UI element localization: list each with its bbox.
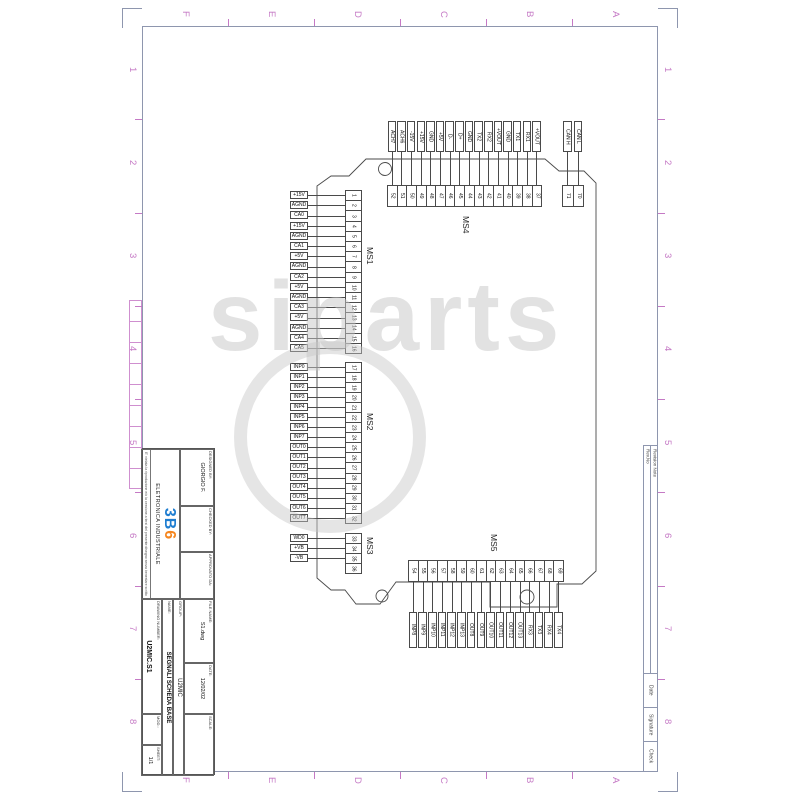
pin-label-WD0: WD0 — [290, 534, 308, 542]
pin-cell: 60 — [467, 561, 477, 581]
pin-number: 8 — [351, 266, 357, 269]
ms4-pin-strip: 52515049484746454443424140393837 — [387, 185, 542, 207]
pin-cell: 5 — [346, 232, 361, 242]
checked-by-label: CHECKED BY: — [208, 507, 214, 551]
pin-number: 52 — [389, 193, 395, 199]
date-label-titleblock: DATE: — [208, 664, 214, 713]
pin-wire — [308, 226, 345, 227]
pin-cell: 46 — [446, 186, 456, 206]
pin-label-TX3: TX3 — [535, 612, 544, 648]
pin-number: 16 — [351, 346, 357, 352]
pin-wire — [490, 582, 491, 612]
pin-cell: 35 — [346, 554, 361, 564]
scale-label: SCALE: — [208, 715, 214, 775]
pin-cell: 43 — [475, 186, 485, 206]
pin-number: 28 — [351, 475, 357, 481]
pin-wire — [488, 152, 489, 185]
pin-number: 39 — [515, 193, 521, 199]
pin-label-+5V: +5V — [436, 121, 445, 152]
pin-number: 38 — [524, 193, 530, 199]
pin-wire — [442, 582, 443, 612]
pin-wire — [452, 582, 453, 612]
ms1-pin-strip: 12345678910111213141516 — [345, 190, 362, 354]
pin-cell: 11 — [346, 293, 361, 303]
pin-label-OUT12: OUT12 — [506, 612, 515, 648]
pin-label-INP2: INP2 — [290, 383, 308, 391]
pin-number: 71 — [565, 193, 571, 199]
pin-label-OUT0: OUT0 — [290, 443, 308, 451]
pin-wire — [461, 582, 462, 612]
pin-label-RX2: RX2 — [484, 121, 493, 152]
pin-cell: 6 — [346, 242, 361, 252]
pin-number: 57 — [439, 568, 445, 574]
pin-number: 43 — [476, 193, 482, 199]
pin-label--15V: -15V — [407, 121, 416, 152]
pin-wire — [308, 447, 345, 448]
pin-wire — [479, 152, 480, 185]
pin-number: 37 — [534, 193, 540, 199]
pin-wire — [308, 558, 345, 559]
pin-cell: 14 — [346, 324, 361, 334]
pin-label-OUT1: OUT1 — [290, 453, 308, 461]
mod-label: MOD.: — [156, 715, 162, 744]
ms2-caption: MS2 — [365, 413, 375, 430]
pin-number: 62 — [488, 568, 494, 574]
ms4-caption: MS4 — [461, 216, 471, 233]
pin-cell: 31 — [346, 504, 361, 514]
drawing-number-cell: DRAWING NUMBER: U2MIC.S1 — [141, 599, 162, 714]
drawing-sheet: Rev.No Revision Note Date Signature Chec… — [0, 0, 800, 800]
pin-cell: 47 — [436, 186, 446, 206]
sheet-label: SHEET: — [156, 746, 162, 775]
pin-label-INP1: INP1 — [290, 373, 308, 381]
pin-label-CA3: CA3 — [290, 303, 308, 311]
pin-number: 56 — [430, 568, 436, 574]
pin-cell: 56 — [428, 561, 438, 581]
pin-cell: 39 — [513, 186, 523, 206]
pin-cell: 50 — [407, 186, 417, 206]
pin-label-ACH6: ACH6 — [397, 121, 406, 152]
pin-number: 23 — [351, 425, 357, 431]
pin-cell: 36 — [346, 564, 361, 574]
pin-number: 2 — [351, 204, 357, 207]
pin-cell: 12 — [346, 303, 361, 313]
pin-number: 10 — [351, 285, 357, 291]
pin-number: 25 — [351, 445, 357, 451]
pin-wire — [308, 508, 345, 509]
pin-label-RX1: RX1 — [523, 121, 532, 152]
pin-label-CA2: CA2 — [290, 273, 308, 281]
pin-label-CA0: CA0 — [290, 211, 308, 219]
pin-label-OUT6: OUT6 — [290, 504, 308, 512]
pin-wire — [401, 152, 402, 185]
pin-number: 5 — [351, 235, 357, 238]
pin-cell: 25 — [346, 443, 361, 453]
checked-by-cell: CHECKED BY: — [180, 506, 214, 552]
pin-label-RX4: RX4 — [544, 612, 553, 648]
pin-label-+15V: +15V — [417, 121, 426, 152]
pin-number: 58 — [449, 568, 455, 574]
pin-label--VB: -VB — [290, 554, 308, 562]
pin-wire — [308, 417, 345, 418]
pin-number: 35 — [351, 556, 357, 562]
pin-cell: 15 — [346, 334, 361, 344]
pin-number: 17 — [351, 365, 357, 371]
ms3-caption: MS3 — [365, 537, 375, 554]
pin-number: 69 — [556, 568, 562, 574]
pin-cell: 63 — [496, 561, 506, 581]
pin-wire — [392, 152, 393, 185]
pin-wire — [308, 318, 345, 319]
pin-cell: 13 — [346, 313, 361, 323]
pin-cell: 65 — [516, 561, 526, 581]
pin-number: 61 — [478, 568, 484, 574]
title-block: DESIGNED BY: GIORGIO F. CHECKED BY: APPR… — [142, 448, 215, 775]
pin-label-+5V: +5V — [290, 252, 308, 260]
pin-label-TX4: TX4 — [554, 612, 563, 648]
pin-cell: 17 — [346, 363, 361, 373]
pin-label-+VOUT: +VOUT — [494, 121, 503, 152]
ms1-caption: MS1 — [365, 247, 375, 264]
pin-number: 31 — [351, 505, 357, 511]
pin-label-INP7: INP7 — [290, 433, 308, 441]
pin-label-OUT8: OUT8 — [467, 612, 476, 648]
pin-label-CAN-L: CAN L — [574, 121, 583, 152]
pin-label-AGND: AGND — [290, 324, 308, 332]
pin-wire — [432, 582, 433, 612]
pin-number: 19 — [351, 385, 357, 391]
sheet-value: 1/1 — [148, 746, 154, 775]
pin-cell: 71 — [563, 186, 574, 206]
pin-cell: 28 — [346, 474, 361, 484]
pin-cell: 22 — [346, 413, 361, 423]
pin-number: 27 — [351, 465, 357, 471]
mod-cell: MOD.: — [141, 714, 162, 745]
pin-number: 33 — [351, 536, 357, 542]
company-logo-cell: 3B6 ELETRONICA INDUSTRIALE E' vietata la… — [141, 449, 180, 599]
can-pin-strip: 7170 — [562, 185, 584, 207]
approved-by-label: APPROVATO DA: — [208, 553, 214, 598]
pin-wire — [308, 457, 345, 458]
pin-cell: 20 — [346, 393, 361, 403]
pin-cell: 70 — [574, 186, 585, 206]
pin-label-INP3: INP3 — [290, 393, 308, 401]
pin-wire — [308, 407, 345, 408]
pin-label-INP8: INP8 — [409, 612, 418, 648]
company-logo: 3B6 — [161, 450, 177, 598]
pin-cell: 29 — [346, 484, 361, 494]
pin-wire — [308, 287, 345, 288]
fine-print: E' vietata la riproduzione e/o la cessio… — [142, 450, 151, 598]
pin-number: 46 — [447, 193, 453, 199]
pin-number: 3 — [351, 215, 357, 218]
logo-digit-3: 3 — [161, 508, 178, 518]
pin-wire — [421, 152, 422, 185]
pin-wire — [578, 152, 579, 185]
pin-number: 12 — [351, 305, 357, 311]
pin-label-OUT9: OUT9 — [477, 612, 486, 648]
pin-number: 59 — [459, 568, 465, 574]
name-value: SEGNALI SCHEDA BASE — [165, 600, 171, 775]
pin-cell: 51 — [398, 186, 408, 206]
pin-wire — [549, 582, 550, 612]
pin-wire — [308, 397, 345, 398]
pin-label-GND: GND — [503, 121, 512, 152]
pin-label-OUT2: OUT2 — [290, 463, 308, 471]
pin-label-AGND: AGND — [290, 232, 308, 240]
pin-wire — [308, 348, 345, 349]
pin-number: 18 — [351, 375, 357, 381]
pin-number: 49 — [418, 193, 424, 199]
pin-number: 55 — [420, 568, 426, 574]
drawing-number-label: DRAWING NUMBER: — [156, 600, 162, 713]
pin-number: 66 — [527, 568, 533, 574]
pin-number: 6 — [351, 245, 357, 248]
pin-wire — [459, 152, 460, 185]
pin-number: 63 — [498, 568, 504, 574]
pin-wire — [308, 236, 345, 237]
pin-label-INP11: INP11 — [438, 612, 447, 648]
pin-number: 11 — [351, 295, 357, 300]
pin-label-CA5: CA5 — [290, 344, 308, 352]
pin-wire — [481, 582, 482, 612]
pin-cell: 18 — [346, 373, 361, 383]
pin-wire — [413, 582, 414, 612]
pin-number: 29 — [351, 485, 357, 491]
pin-number: 54 — [410, 568, 416, 574]
pin-label-AGND: AGND — [290, 262, 308, 270]
logo-letter-b: B — [161, 518, 178, 531]
pin-wire — [471, 582, 472, 612]
group-cell: GROUP: U2MIC — [173, 599, 184, 776]
pin-wire — [308, 338, 345, 339]
ms3-pin-strip: 33343536 — [345, 533, 362, 574]
pin-number: 50 — [409, 193, 415, 199]
pin-cell: 41 — [494, 186, 504, 206]
pin-cell: 42 — [484, 186, 494, 206]
pin-label-OUT11: OUT11 — [496, 612, 505, 648]
pin-wire — [500, 582, 501, 612]
pin-cell: 52 — [388, 186, 398, 206]
designed-by-cell: DESIGNED BY: GIORGIO F. — [180, 449, 214, 506]
pin-wire — [308, 195, 345, 196]
pin-number: 34 — [351, 546, 357, 552]
pin-wire — [308, 256, 345, 257]
pin-number: 24 — [351, 435, 357, 441]
pin-number: 67 — [536, 568, 542, 574]
pin-cell: 66 — [525, 561, 535, 581]
pin-number: 48 — [428, 193, 434, 199]
group-value: U2MIC — [176, 600, 182, 775]
pin-cell: 64 — [506, 561, 516, 581]
pin-wire — [308, 205, 345, 206]
pin-cell: 16 — [346, 344, 361, 354]
date-value: 12/02/02 — [200, 664, 206, 713]
pin-number: 15 — [351, 336, 357, 342]
pin-wire — [527, 152, 528, 185]
pin-wire — [539, 582, 540, 612]
pin-cell: 44 — [465, 186, 475, 206]
pin-wire — [510, 582, 511, 612]
pin-cell: 61 — [477, 561, 487, 581]
board-outline — [0, 0, 800, 800]
pin-cell: 19 — [346, 383, 361, 393]
pin-number: 7 — [351, 255, 357, 258]
pin-wire — [308, 377, 345, 378]
pin-label-D-: D- — [445, 121, 454, 152]
pin-number: 70 — [576, 193, 582, 199]
pin-cell: 7 — [346, 252, 361, 262]
pin-label-AGND: AGND — [290, 293, 308, 301]
pin-wire — [308, 307, 345, 308]
pin-cell: 9 — [346, 273, 361, 283]
pin-number: 68 — [546, 568, 552, 574]
pin-cell: 23 — [346, 423, 361, 433]
pin-label-OUT7: OUT7 — [290, 514, 308, 522]
pin-wire — [308, 548, 345, 549]
date-cell-titleblock: DATE: 12/02/02 — [184, 663, 214, 714]
pin-cell: 37 — [533, 186, 543, 206]
approved-by-cell: APPROVATO DA: — [180, 552, 214, 599]
pin-label-INP9: INP9 — [418, 612, 427, 648]
pin-number: 30 — [351, 495, 357, 501]
pin-cell: 49 — [417, 186, 427, 206]
pin-cell: 10 — [346, 283, 361, 293]
pin-wire — [508, 152, 509, 185]
pin-number: 9 — [351, 276, 357, 279]
pin-number: 40 — [505, 193, 511, 199]
pin-cell: 62 — [487, 561, 497, 581]
pin-wire — [558, 582, 559, 612]
pin-label-OUT4: OUT4 — [290, 483, 308, 491]
pin-label-TX1: TX1 — [513, 121, 522, 152]
pin-number: 47 — [438, 193, 444, 199]
pin-cell: 38 — [523, 186, 533, 206]
pin-label-OUT10: OUT10 — [486, 612, 495, 648]
pin-label-AGND: AGND — [290, 201, 308, 209]
pin-number: 51 — [399, 193, 405, 199]
pin-number: 60 — [469, 568, 475, 574]
pin-label-GND: GND — [426, 121, 435, 152]
scale-cell: SCALE: — [184, 714, 214, 776]
pin-number: 20 — [351, 395, 357, 401]
pin-wire — [308, 277, 345, 278]
pin-number: 42 — [486, 193, 492, 199]
pin-cell: 40 — [504, 186, 514, 206]
pin-number: 36 — [351, 566, 357, 572]
file-name-cell: FILE NAME: S1.dwg — [184, 599, 214, 663]
pin-number: 32 — [351, 516, 357, 522]
pin-label-TX2: TX2 — [474, 121, 483, 152]
pin-wire — [308, 367, 345, 368]
logo-digit-6: 6 — [161, 530, 178, 540]
pin-cell: 32 — [346, 514, 361, 524]
pin-label-OUT5: OUT5 — [290, 493, 308, 501]
pin-cell: 67 — [535, 561, 545, 581]
pin-label-INP13: INP13 — [457, 612, 466, 648]
ms2-pin-strip: 17181920212223242526272829303132 — [345, 362, 362, 524]
pin-cell: 45 — [455, 186, 465, 206]
pin-wire — [308, 518, 345, 519]
pin-cell: 68 — [545, 561, 555, 581]
pin-label-INP10: INP10 — [428, 612, 437, 648]
pin-cell: 3 — [346, 211, 361, 221]
pin-cell: 57 — [438, 561, 448, 581]
pin-number: 45 — [457, 193, 463, 199]
pin-label-INP5: INP5 — [290, 413, 308, 421]
pin-number: 13 — [351, 315, 357, 321]
pin-wire — [469, 152, 470, 185]
pin-wire — [567, 152, 568, 185]
pin-label-INP12: INP12 — [447, 612, 456, 648]
pin-cell: 8 — [346, 262, 361, 272]
pin-cell: 4 — [346, 222, 361, 232]
file-name-value: S1.dwg — [200, 600, 206, 662]
pin-number: 21 — [351, 405, 357, 411]
pin-wire — [411, 152, 412, 185]
pin-wire — [520, 582, 521, 612]
pin-wire — [308, 216, 345, 217]
pin-wire — [308, 437, 345, 438]
pin-label-INP6: INP6 — [290, 423, 308, 431]
pin-number: 1 — [351, 194, 357, 197]
pin-number: 4 — [351, 225, 357, 228]
pin-label-+5V: +5V — [290, 313, 308, 321]
pin-label-INP0: INP0 — [290, 363, 308, 371]
pin-wire — [517, 152, 518, 185]
pin-wire — [308, 498, 345, 499]
pin-label-+15V: +15V — [290, 191, 308, 199]
pin-label-CA4: CA4 — [290, 334, 308, 342]
pin-label-OUT3: OUT3 — [290, 473, 308, 481]
sheet-cell: SHEET: 1/1 — [141, 745, 162, 776]
pin-wire — [430, 152, 431, 185]
pin-wire — [308, 427, 345, 428]
pin-number: 14 — [351, 325, 357, 331]
pin-wire — [450, 152, 451, 185]
pin-label-GND: GND — [465, 121, 474, 152]
pin-wire — [308, 478, 345, 479]
pin-cell: 1 — [346, 191, 361, 201]
pin-cell: 55 — [419, 561, 429, 581]
pin-label-+VB: +VB — [290, 544, 308, 552]
name-cell: NAME: SEGNALI SCHEDA BASE — [162, 599, 173, 776]
pin-cell: 27 — [346, 464, 361, 474]
pin-number: 22 — [351, 415, 357, 421]
pin-wire — [308, 246, 345, 247]
pin-cell: 21 — [346, 403, 361, 413]
ms5-pin-strip: 54555657585960616263646566676869 — [408, 560, 564, 582]
pin-wire — [308, 267, 345, 268]
file-name-label: FILE NAME: — [208, 600, 214, 662]
pin-cell: 26 — [346, 453, 361, 463]
pin-wire — [498, 152, 499, 185]
pin-label-+5V: +5V — [290, 283, 308, 291]
pin-number: 26 — [351, 455, 357, 461]
pin-wire — [308, 297, 345, 298]
pin-label-CAN-H: CAN H — [563, 121, 572, 152]
pin-wire — [308, 488, 345, 489]
designed-by-value: GIORGIO F. — [200, 450, 206, 505]
pin-label-ACH7: ACH7 — [388, 121, 397, 152]
pin-label-+15V: +15V — [290, 222, 308, 230]
pin-cell: 24 — [346, 433, 361, 443]
pin-cell: 58 — [448, 561, 458, 581]
mounting-hole-bottom-right — [520, 590, 534, 604]
pin-cell: 33 — [346, 534, 361, 544]
drawing-number-value: U2MIC.S1 — [146, 600, 153, 713]
pin-label-INP4: INP4 — [290, 403, 308, 411]
